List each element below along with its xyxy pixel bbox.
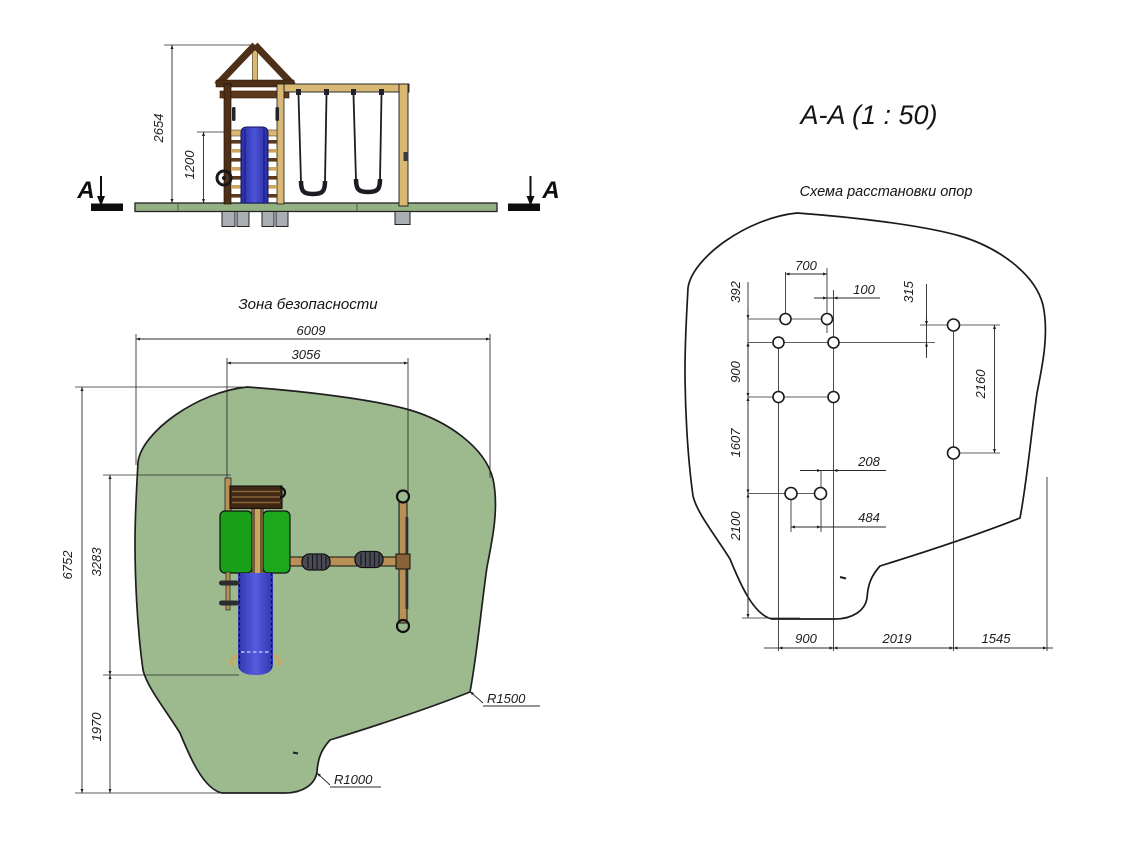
king-post xyxy=(253,50,258,81)
dim-315: 315 xyxy=(901,280,916,302)
section-title: A-A (1 : 50) xyxy=(798,100,937,130)
ladder-bar xyxy=(219,581,239,586)
support-post xyxy=(780,314,791,325)
dim-height-inner: 3283 xyxy=(89,547,104,577)
t-junction xyxy=(396,554,410,569)
radius-center-mark xyxy=(840,577,846,579)
drawing-canvas: 2654 1200 xyxy=(0,0,1130,848)
support-grid-lines xyxy=(742,268,1047,651)
swing-seat xyxy=(354,95,382,192)
dim-208: 208 xyxy=(857,454,880,469)
support-post xyxy=(815,488,827,500)
dim-width-inner: 3056 xyxy=(292,347,322,362)
swing-seat xyxy=(299,95,327,194)
support-post xyxy=(948,447,960,459)
r1500-text: R1500 xyxy=(487,691,526,706)
support-post xyxy=(828,337,839,348)
swing-post xyxy=(399,84,408,206)
ladder-bar xyxy=(219,601,239,606)
support-posts xyxy=(773,314,960,500)
post-bracket xyxy=(404,152,409,161)
swing-beam xyxy=(284,84,409,92)
safety-zone-plan: Зона безопасности 6009 3056 6752 3283 19… xyxy=(60,296,540,793)
ground-platform xyxy=(135,203,497,212)
tower-post-right xyxy=(277,84,284,204)
dim-height-total: 6752 xyxy=(60,550,75,580)
section-letter: A xyxy=(541,177,559,204)
dim-height-total: 2654 xyxy=(151,114,166,144)
elevation-view: 2654 1200 xyxy=(76,45,559,227)
section-zone-outline xyxy=(685,213,1045,619)
dim-484: 484 xyxy=(858,510,880,525)
dim-900-left: 900 xyxy=(728,360,743,382)
safety-zone-area xyxy=(135,387,495,793)
support-post xyxy=(785,488,797,500)
swing-seat-plan xyxy=(355,552,383,568)
support-post xyxy=(822,314,833,325)
support-post xyxy=(828,392,839,403)
support-post xyxy=(773,337,784,348)
dim-bottom-2019: 2019 xyxy=(882,631,912,646)
section-letter: A xyxy=(76,177,94,204)
slide-plan xyxy=(238,573,273,675)
radius-center-mark xyxy=(293,753,298,754)
footings xyxy=(222,212,410,227)
safety-zone-title: Зона безопасности xyxy=(238,296,378,313)
r1000-text: R1000 xyxy=(334,772,373,787)
roof-panel-left xyxy=(220,511,252,573)
section-subtitle: Схема расстановки опор xyxy=(800,184,973,200)
support-post xyxy=(948,319,960,331)
technical-drawing: 2654 1200 xyxy=(0,0,1130,848)
dim-1607: 1607 xyxy=(728,428,743,458)
section-marker-right: A xyxy=(508,176,560,211)
section-view: A-A (1 : 50) Схема расстановки опор xyxy=(685,100,1053,651)
steering-wheel-hub xyxy=(222,176,226,180)
dim-2100: 2100 xyxy=(728,511,743,542)
swing-seat-plan xyxy=(302,554,330,570)
handle xyxy=(232,107,236,121)
section-marker-left: A xyxy=(76,176,123,211)
roof-panel-right xyxy=(263,511,290,573)
dim-700: 700 xyxy=(795,258,817,273)
dim-100: 100 xyxy=(853,282,875,297)
dim-slide-height: 1200 xyxy=(182,150,197,180)
dim-392: 392 xyxy=(728,280,743,302)
dim-width-total: 6009 xyxy=(297,323,326,338)
support-post xyxy=(773,392,784,403)
dim-height-lower: 1970 xyxy=(89,712,104,742)
handle xyxy=(276,107,280,121)
radius-label-r1000: R1000 xyxy=(317,772,381,787)
dim-bottom-900: 900 xyxy=(795,631,817,646)
dim-2160: 2160 xyxy=(973,369,988,400)
dim-bottom-1545: 1545 xyxy=(982,631,1012,646)
radius-label-r1500: R1500 xyxy=(470,691,540,706)
